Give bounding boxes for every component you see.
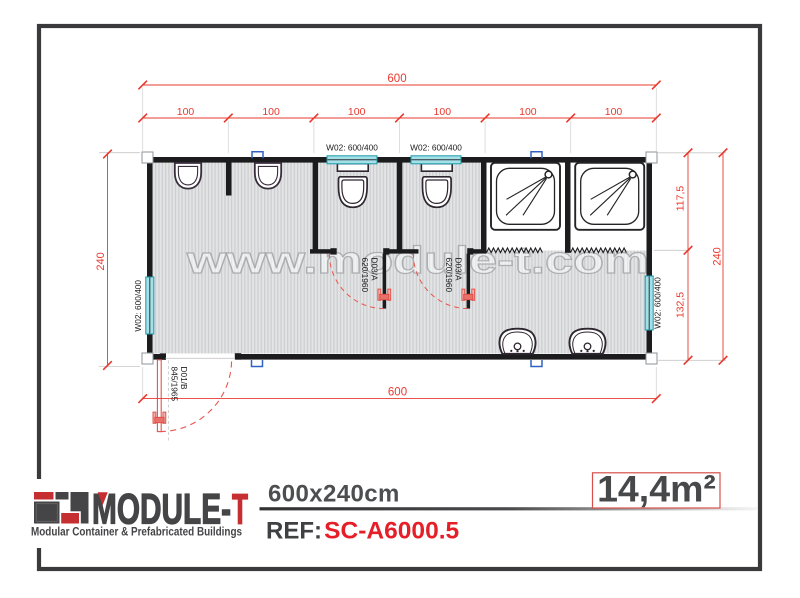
svg-text:100: 100 [348, 106, 366, 118]
svg-text:W02: 600/400: W02: 600/400 [410, 142, 462, 152]
svg-text:240: 240 [95, 252, 107, 270]
svg-text:REF:: REF: [266, 518, 322, 545]
svg-text:600: 600 [388, 387, 407, 399]
svg-text:www.module-t.com: www.module-t.com [186, 240, 649, 282]
svg-text:100: 100 [262, 106, 280, 118]
svg-text:W02: 600/400: W02: 600/400 [653, 277, 663, 329]
svg-text:W02: 600/400: W02: 600/400 [133, 280, 143, 332]
svg-text:14,4m²: 14,4m² [597, 468, 716, 510]
svg-text:W02: 600/400: W02: 600/400 [326, 142, 378, 152]
svg-text:117,5: 117,5 [675, 186, 687, 212]
svg-text:100: 100 [605, 106, 623, 118]
svg-text:SC-A6000.5: SC-A6000.5 [324, 518, 459, 545]
svg-text:600x240cm: 600x240cm [268, 481, 400, 508]
svg-text:600: 600 [387, 73, 406, 85]
svg-text:240: 240 [712, 247, 724, 265]
svg-text:Modular Container & Prefabrica: Modular Container & Prefabricated Buildi… [31, 525, 242, 539]
svg-text:132,5: 132,5 [675, 292, 687, 318]
svg-text:100: 100 [519, 106, 537, 118]
svg-text:100: 100 [177, 106, 195, 118]
svg-text:100: 100 [434, 106, 452, 118]
